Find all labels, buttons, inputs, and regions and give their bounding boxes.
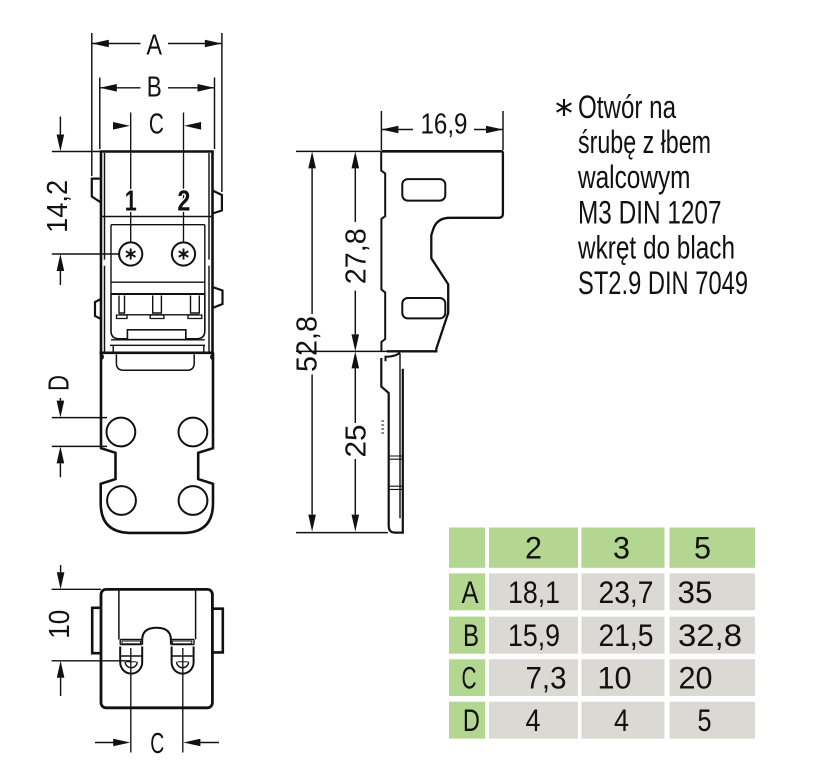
svg-text:25: 25 bbox=[341, 425, 373, 458]
svg-text:A: A bbox=[462, 574, 479, 610]
svg-text:14,2: 14,2 bbox=[42, 180, 74, 233]
svg-text:D: D bbox=[44, 375, 76, 391]
svg-text:C: C bbox=[149, 109, 164, 141]
svg-text:5: 5 bbox=[694, 530, 711, 566]
svg-text:M3 DIN 1207: M3 DIN 1207 bbox=[578, 194, 722, 230]
svg-text:3: 3 bbox=[613, 530, 630, 566]
svg-text:23,7: 23,7 bbox=[599, 574, 654, 610]
svg-text:wkręt do blach: wkręt do blach bbox=[577, 230, 735, 266]
svg-text:C: C bbox=[462, 660, 477, 696]
svg-text:21,5: 21,5 bbox=[599, 617, 654, 653]
svg-text:4: 4 bbox=[614, 702, 629, 738]
svg-text:A: A bbox=[147, 30, 163, 62]
svg-text:16,9: 16,9 bbox=[421, 109, 468, 141]
svg-text:5: 5 bbox=[698, 702, 712, 738]
svg-text:walcowym: walcowym bbox=[577, 159, 690, 195]
svg-text:C: C bbox=[150, 728, 164, 760]
svg-text:32,8: 32,8 bbox=[678, 617, 742, 653]
svg-text:4: 4 bbox=[526, 702, 541, 738]
svg-text:18,1: 18,1 bbox=[508, 574, 560, 610]
svg-text:2: 2 bbox=[177, 186, 190, 218]
svg-text:ST2.9 DIN 7049: ST2.9 DIN 7049 bbox=[578, 265, 748, 301]
svg-text:2: 2 bbox=[525, 530, 542, 566]
svg-text:1: 1 bbox=[125, 186, 137, 218]
svg-text:D: D bbox=[463, 702, 480, 738]
svg-text:27,8: 27,8 bbox=[341, 228, 373, 284]
svg-text:śrubę z łbem: śrubę z łbem bbox=[578, 124, 711, 160]
svg-text:B: B bbox=[147, 72, 162, 104]
svg-text:35: 35 bbox=[678, 574, 713, 610]
svg-text:Otwór na: Otwór na bbox=[578, 89, 676, 125]
svg-text:7,3: 7,3 bbox=[526, 660, 567, 696]
svg-text:15,9: 15,9 bbox=[508, 617, 560, 653]
svg-text:52,8: 52,8 bbox=[292, 316, 324, 372]
svg-text:10: 10 bbox=[598, 660, 632, 696]
svg-text:10: 10 bbox=[44, 610, 76, 639]
svg-text:B: B bbox=[463, 617, 479, 653]
svg-text:20: 20 bbox=[679, 660, 713, 696]
